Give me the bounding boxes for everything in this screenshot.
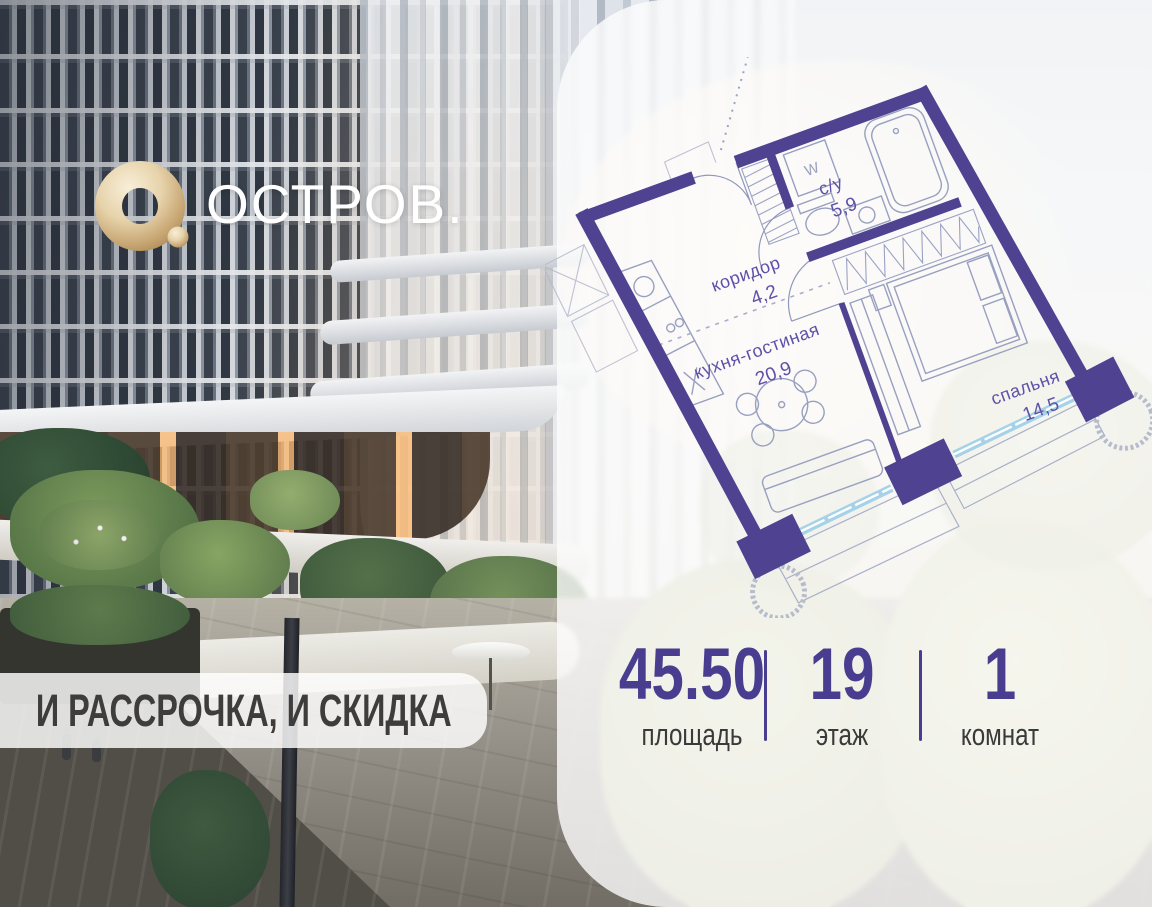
promo-card: ОСТРОВ. xyxy=(0,0,1152,907)
flower-bush xyxy=(40,500,160,570)
stat-rooms-value: 1 xyxy=(912,641,1088,708)
room-area-kitchen: 20,9 xyxy=(753,358,795,390)
room-area-corridor: 4,2 xyxy=(748,281,780,310)
bush xyxy=(160,520,290,605)
floor-plan: с/у 5,9 коридор 4,2 кухня-гостиная 20,9 … xyxy=(545,18,1152,618)
washer-label: W xyxy=(802,159,822,180)
umbrella-pole xyxy=(489,658,492,710)
brand-name: ОСТРОВ. xyxy=(206,172,465,236)
promo-banner: И РАССРОЧКА, И СКИДКА xyxy=(0,673,487,748)
stat-rooms-label: комнат xyxy=(914,717,1086,753)
brand-logo: ОСТРОВ. xyxy=(82,156,562,276)
stat-rooms: 1 комнат xyxy=(890,641,1110,753)
logo-dot xyxy=(168,227,189,248)
entry-path-dots xyxy=(694,57,774,150)
planter-greenery xyxy=(10,585,190,645)
balcony-outline xyxy=(759,398,1122,605)
promo-banner-text: И РАССРОЧКА, И СКИДКА xyxy=(36,685,452,737)
bush xyxy=(250,470,340,530)
bush xyxy=(150,770,270,907)
room-label-bathroom: с/у xyxy=(816,172,846,199)
walls xyxy=(579,57,1139,574)
